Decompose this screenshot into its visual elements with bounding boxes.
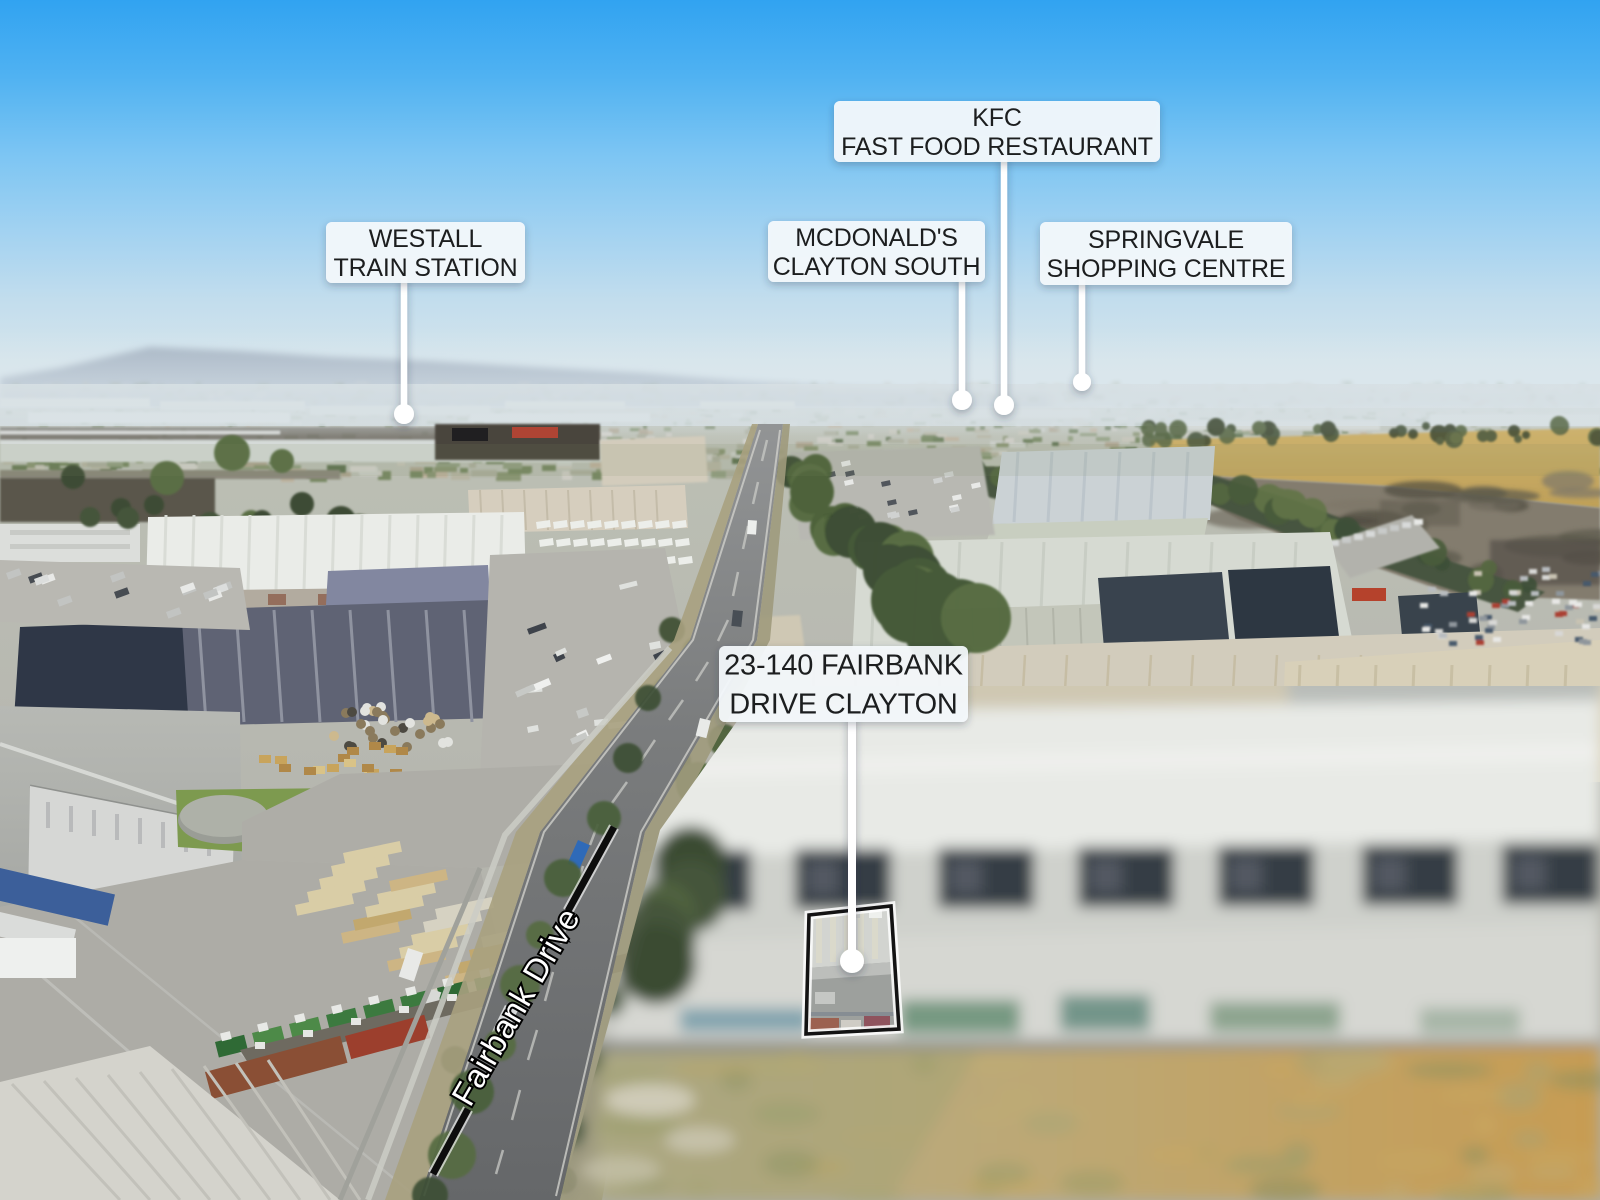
svg-text:23-140 FAIRBANK: 23-140 FAIRBANK xyxy=(724,650,964,682)
svg-text:KFC: KFC xyxy=(972,104,1022,132)
svg-text:CLAYTON SOUTH: CLAYTON SOUTH xyxy=(773,253,981,281)
svg-text:FAST FOOD RESTAURANT: FAST FOOD RESTAURANT xyxy=(841,133,1153,161)
svg-text:MCDONALD'S: MCDONALD'S xyxy=(795,224,958,252)
svg-text:SHOPPING CENTRE: SHOPPING CENTRE xyxy=(1047,255,1286,283)
svg-text:TRAIN STATION: TRAIN STATION xyxy=(334,254,518,282)
svg-text:SPRINGVALE: SPRINGVALE xyxy=(1088,226,1244,254)
svg-text:DRIVE CLAYTON: DRIVE CLAYTON xyxy=(729,689,957,721)
svg-text:WESTALL: WESTALL xyxy=(369,225,483,253)
